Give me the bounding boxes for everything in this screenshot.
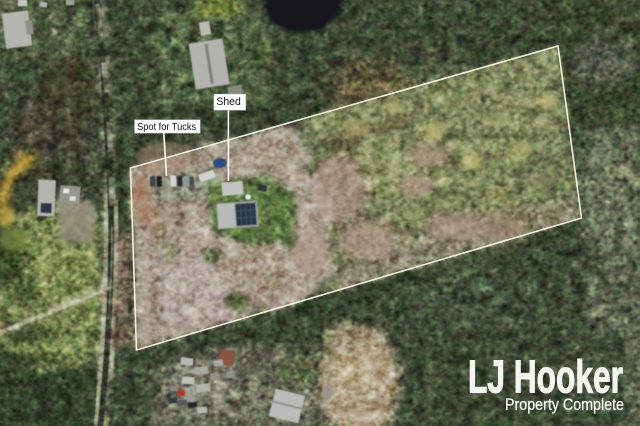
svg-text:LJ Hooker: LJ Hooker xyxy=(468,351,623,403)
svg-text:Spot for Tucks: Spot for Tucks xyxy=(137,122,196,133)
svg-text:Property Complete: Property Complete xyxy=(505,396,624,414)
svg-text:Shed: Shed xyxy=(216,96,241,108)
